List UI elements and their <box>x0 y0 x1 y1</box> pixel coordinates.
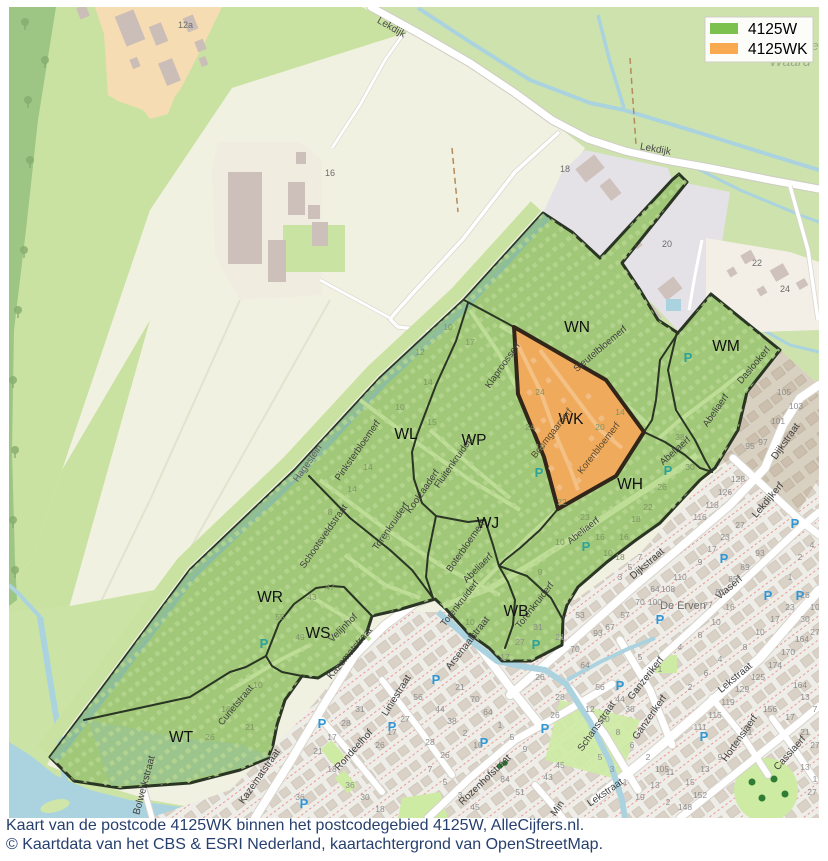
svg-text:67: 67 <box>605 622 615 632</box>
svg-text:3: 3 <box>618 572 623 582</box>
svg-text:26: 26 <box>550 710 560 720</box>
svg-text:6: 6 <box>386 532 391 542</box>
svg-text:43: 43 <box>543 772 553 782</box>
svg-text:5: 5 <box>598 752 603 762</box>
svg-text:164: 164 <box>793 680 807 690</box>
svg-text:P: P <box>318 716 327 731</box>
svg-text:De Erven: De Erven <box>660 600 706 612</box>
svg-text:125: 125 <box>751 672 765 682</box>
svg-text:51: 51 <box>515 787 525 797</box>
svg-text:1: 1 <box>748 727 753 737</box>
svg-text:5: 5 <box>443 777 448 787</box>
svg-text:100: 100 <box>648 597 662 607</box>
svg-text:81: 81 <box>715 587 725 597</box>
svg-text:14: 14 <box>347 484 357 494</box>
svg-text:17: 17 <box>770 614 780 624</box>
svg-text:38: 38 <box>675 432 685 442</box>
svg-text:12a: 12a <box>178 20 193 30</box>
svg-text:26: 26 <box>657 482 667 492</box>
svg-text:17: 17 <box>707 544 717 554</box>
svg-text:38: 38 <box>447 716 457 726</box>
svg-text:148: 148 <box>678 802 692 812</box>
svg-text:18: 18 <box>535 442 545 452</box>
svg-text:24: 24 <box>525 422 535 432</box>
svg-text:14: 14 <box>615 407 625 417</box>
svg-text:6: 6 <box>704 668 709 678</box>
svg-text:44: 44 <box>435 704 445 714</box>
svg-text:P: P <box>432 672 441 687</box>
svg-text:19: 19 <box>635 792 645 802</box>
svg-text:4: 4 <box>678 642 683 652</box>
svg-text:21: 21 <box>313 746 323 756</box>
svg-text:156: 156 <box>763 704 777 714</box>
svg-text:22: 22 <box>557 497 567 507</box>
svg-text:15: 15 <box>685 777 695 787</box>
svg-text:30: 30 <box>360 792 370 802</box>
svg-text:27: 27 <box>810 740 820 750</box>
svg-text:45: 45 <box>470 802 480 812</box>
svg-text:12: 12 <box>415 347 425 357</box>
svg-text:WH: WH <box>617 476 643 493</box>
svg-text:2: 2 <box>463 728 468 738</box>
svg-text:28: 28 <box>425 737 435 747</box>
svg-text:5: 5 <box>638 652 643 662</box>
svg-text:13: 13 <box>650 780 660 790</box>
svg-text:84: 84 <box>500 774 510 784</box>
svg-text:24: 24 <box>535 387 545 397</box>
svg-text:P: P <box>656 612 665 627</box>
svg-text:28: 28 <box>555 692 565 702</box>
svg-text:105: 105 <box>777 387 791 397</box>
svg-text:44: 44 <box>615 694 625 704</box>
svg-text:18: 18 <box>327 764 337 774</box>
svg-text:55: 55 <box>275 612 285 622</box>
svg-text:8: 8 <box>616 727 621 737</box>
svg-text:4: 4 <box>718 654 723 664</box>
svg-text:16: 16 <box>619 532 629 542</box>
svg-text:P: P <box>532 637 541 652</box>
svg-text:8: 8 <box>743 642 748 652</box>
svg-text:23: 23 <box>720 532 730 542</box>
svg-text:12: 12 <box>585 704 595 714</box>
svg-text:10: 10 <box>555 537 565 547</box>
svg-text:14: 14 <box>423 377 433 387</box>
svg-text:8: 8 <box>698 630 703 640</box>
svg-text:10: 10 <box>443 322 453 332</box>
svg-text:Kaart van de postcode 4125WK b: Kaart van de postcode 4125WK binnen het … <box>6 817 584 834</box>
svg-text:P: P <box>535 465 544 480</box>
svg-text:7: 7 <box>813 704 818 714</box>
svg-text:1: 1 <box>498 720 503 730</box>
svg-text:95: 95 <box>745 441 755 451</box>
svg-text:164: 164 <box>795 634 809 644</box>
svg-text:2: 2 <box>798 552 803 562</box>
svg-text:27: 27 <box>400 714 410 724</box>
svg-text:64: 64 <box>650 584 660 594</box>
svg-text:116: 116 <box>693 512 707 522</box>
svg-text:21: 21 <box>555 632 565 642</box>
svg-text:P: P <box>684 350 693 365</box>
svg-text:56: 56 <box>413 692 423 702</box>
svg-text:1: 1 <box>623 777 628 787</box>
svg-text:108: 108 <box>661 584 675 594</box>
svg-text:7: 7 <box>638 552 643 562</box>
svg-text:36: 36 <box>295 792 305 802</box>
svg-text:4: 4 <box>810 540 815 550</box>
svg-text:26: 26 <box>535 672 545 682</box>
svg-text:77: 77 <box>703 600 713 610</box>
svg-text:93: 93 <box>593 628 603 638</box>
svg-text:38: 38 <box>625 704 635 714</box>
svg-text:P: P <box>541 721 550 736</box>
svg-text:23: 23 <box>580 512 590 522</box>
svg-text:WR: WR <box>257 589 283 606</box>
svg-text:21: 21 <box>800 727 810 737</box>
svg-text:2: 2 <box>666 797 671 807</box>
svg-text:11: 11 <box>666 767 675 777</box>
svg-text:9: 9 <box>523 744 528 754</box>
svg-text:WT: WT <box>169 729 194 746</box>
svg-text:9: 9 <box>718 752 723 762</box>
svg-text:13: 13 <box>800 692 810 702</box>
svg-text:22: 22 <box>752 258 762 268</box>
svg-text:152: 152 <box>693 790 707 800</box>
svg-text:31: 31 <box>355 704 365 714</box>
svg-text:129: 129 <box>735 684 749 694</box>
svg-text:18: 18 <box>375 804 385 814</box>
svg-text:22: 22 <box>643 502 653 512</box>
svg-text:WS: WS <box>306 625 331 642</box>
svg-text:P: P <box>582 539 591 554</box>
svg-text:10: 10 <box>395 402 405 412</box>
svg-text:7: 7 <box>428 764 433 774</box>
svg-text:36: 36 <box>345 780 355 790</box>
svg-text:17: 17 <box>465 337 475 347</box>
svg-text:85: 85 <box>728 574 738 584</box>
svg-text:P: P <box>260 636 269 651</box>
svg-text:27: 27 <box>515 637 525 647</box>
svg-text:110: 110 <box>673 572 687 582</box>
svg-text:5: 5 <box>510 732 515 742</box>
svg-text:26: 26 <box>205 732 215 742</box>
svg-text:126: 126 <box>718 487 732 497</box>
svg-text:18: 18 <box>560 164 570 174</box>
svg-text:7: 7 <box>733 740 738 750</box>
svg-text:10: 10 <box>600 714 610 724</box>
svg-text:4125WK: 4125WK <box>748 41 808 58</box>
svg-text:24: 24 <box>780 284 790 294</box>
svg-text:56: 56 <box>595 682 605 692</box>
svg-text:17: 17 <box>500 652 510 662</box>
svg-text:3: 3 <box>610 764 615 774</box>
svg-text:16: 16 <box>595 532 605 542</box>
svg-text:64: 64 <box>580 660 590 670</box>
svg-text:21: 21 <box>455 682 465 692</box>
svg-text:30: 30 <box>800 614 810 624</box>
svg-text:70: 70 <box>570 644 580 654</box>
svg-text:101: 101 <box>771 416 785 426</box>
svg-text:10: 10 <box>465 617 475 627</box>
svg-text:49: 49 <box>295 632 305 642</box>
svg-text:170: 170 <box>781 647 795 657</box>
svg-text:57: 57 <box>620 610 630 620</box>
svg-text:P: P <box>616 678 625 693</box>
svg-text:26: 26 <box>375 740 385 750</box>
svg-text:103: 103 <box>789 401 803 411</box>
svg-text:10: 10 <box>755 627 765 637</box>
svg-text:18: 18 <box>221 704 231 714</box>
svg-text:9: 9 <box>538 567 543 577</box>
svg-text:174: 174 <box>768 660 782 670</box>
svg-text:P: P <box>764 588 773 603</box>
svg-text:30: 30 <box>685 462 695 472</box>
svg-text:26: 26 <box>440 750 450 760</box>
svg-text:16: 16 <box>725 602 735 612</box>
svg-text:1: 1 <box>788 572 793 582</box>
svg-text:64: 64 <box>483 707 493 717</box>
svg-text:118: 118 <box>705 500 719 510</box>
svg-text:13: 13 <box>700 764 710 774</box>
svg-text:WM: WM <box>712 338 740 355</box>
svg-text:© Kaartdata van het CBS & ESRI: © Kaartdata van het CBS & ESRI Nederland… <box>6 836 603 853</box>
svg-text:8: 8 <box>328 507 333 517</box>
svg-text:WL: WL <box>394 426 418 443</box>
svg-text:27: 27 <box>810 627 820 637</box>
svg-text:1: 1 <box>813 774 818 784</box>
svg-text:43: 43 <box>307 592 317 602</box>
svg-text:28: 28 <box>341 718 351 728</box>
svg-text:119: 119 <box>721 697 735 707</box>
svg-text:70: 70 <box>635 597 645 607</box>
svg-text:23: 23 <box>785 602 795 612</box>
svg-text:2: 2 <box>688 682 693 692</box>
svg-text:89: 89 <box>740 562 750 572</box>
svg-text:16: 16 <box>325 168 335 178</box>
svg-text:1: 1 <box>658 664 663 674</box>
svg-text:45: 45 <box>555 760 565 770</box>
svg-text:WN: WN <box>564 319 590 336</box>
svg-text:2: 2 <box>646 752 651 762</box>
svg-text:111: 111 <box>694 722 707 732</box>
svg-text:15: 15 <box>427 417 437 427</box>
svg-text:17: 17 <box>387 727 397 737</box>
svg-text:9: 9 <box>698 557 703 567</box>
svg-text:128: 128 <box>731 474 745 484</box>
svg-text:70: 70 <box>470 694 480 704</box>
svg-text:18: 18 <box>615 552 625 562</box>
svg-text:4125W: 4125W <box>748 21 797 38</box>
svg-text:20: 20 <box>662 239 672 249</box>
svg-text:5: 5 <box>628 562 633 572</box>
svg-text:93: 93 <box>755 548 765 558</box>
svg-text:18: 18 <box>631 514 641 524</box>
svg-text:6: 6 <box>630 740 635 750</box>
svg-text:P: P <box>791 516 800 531</box>
svg-text:20: 20 <box>595 422 605 432</box>
svg-text:3: 3 <box>458 790 463 800</box>
svg-text:10: 10 <box>810 602 820 612</box>
svg-text:P: P <box>720 551 729 566</box>
svg-text:115: 115 <box>708 710 722 720</box>
svg-text:31: 31 <box>533 622 543 632</box>
svg-text:10: 10 <box>711 617 721 627</box>
svg-text:27: 27 <box>735 520 745 530</box>
svg-text:26: 26 <box>800 590 810 600</box>
svg-text:P: P <box>664 463 673 478</box>
svg-text:14: 14 <box>363 462 373 472</box>
svg-text:47: 47 <box>325 582 335 592</box>
svg-text:21: 21 <box>245 722 255 732</box>
svg-text:27: 27 <box>807 787 817 797</box>
svg-text:13: 13 <box>800 762 810 772</box>
svg-text:97: 97 <box>758 437 768 447</box>
svg-text:17: 17 <box>327 732 337 742</box>
svg-text:53: 53 <box>575 610 585 620</box>
svg-text:10: 10 <box>253 680 263 690</box>
svg-text:10: 10 <box>473 740 483 750</box>
svg-text:17: 17 <box>785 712 795 722</box>
svg-text:10: 10 <box>603 548 613 558</box>
